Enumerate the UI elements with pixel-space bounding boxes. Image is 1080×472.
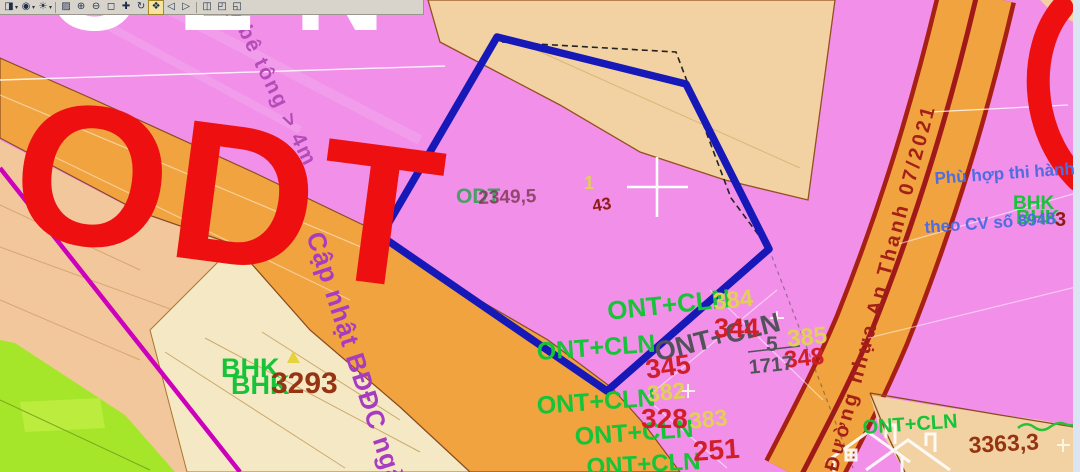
zoom-in-icon[interactable]: ⊕ <box>74 1 88 14</box>
map-label: 1 <box>584 174 594 192</box>
rotate-view-icon[interactable]: ↻ <box>134 1 148 14</box>
view-attributes-icon-dropdown[interactable]: ▾ <box>32 4 35 11</box>
brightness-icon-dropdown[interactable]: ▾ <box>49 4 52 11</box>
fit-view-icon[interactable]: ✚ <box>119 1 133 14</box>
map-label: 3363,3 <box>968 430 1039 457</box>
map-label: ONT+CLN <box>862 411 958 438</box>
zoom-out-icon[interactable]: ⊖ <box>89 1 103 14</box>
map-label: 384 <box>712 287 754 315</box>
map-viewport[interactable]: CLN ODT đường bê tông > 4m Cập nhật BĐĐC… <box>0 0 1080 472</box>
map-label: 1717 <box>748 353 794 378</box>
display-style-icon-dropdown[interactable]: ▾ <box>15 4 18 11</box>
map-label: theo CV số 8948 <box>924 210 1056 236</box>
map-label: 385 <box>786 324 828 352</box>
map-application-window: CLN ODT đường bê tông > 4m Cập nhật BĐĐC… <box>0 0 1080 472</box>
window-area-icon[interactable]: ◻ <box>104 1 118 14</box>
map-label: ONT+CLN <box>586 450 701 472</box>
map-label: 5 <box>766 334 778 355</box>
brightness-icon[interactable]: ☀ <box>36 1 50 14</box>
map-label: 3293 <box>271 369 338 399</box>
map-label: 382 <box>646 379 687 406</box>
map-label: 328 <box>641 405 688 433</box>
map-label: ONT+CLN <box>536 332 656 365</box>
map-label: 43 <box>591 195 613 215</box>
toolbar-separator <box>55 2 56 13</box>
update-view-icon[interactable]: ▨ <box>59 1 73 14</box>
map-labels-layer: ONT+CLNONT+CLNONT+CLNONT+CLNONT+CLNONT+C… <box>0 0 1080 472</box>
view-previous-icon[interactable]: ◁ <box>164 1 178 14</box>
map-label: 344 <box>714 315 759 342</box>
map-label: ONT+CLN <box>536 386 656 419</box>
view-attributes-icon[interactable]: ◉ <box>19 1 33 14</box>
pan-view-icon[interactable]: ❖ <box>149 1 163 14</box>
view-toolbar: ◨▾◉▾☀▾▨⊕⊖◻✚↻❖◁▷◫◰◱ <box>0 0 424 15</box>
map-label: 3 <box>1055 210 1066 230</box>
map-label: 383 <box>688 406 729 433</box>
navigate-view-icon[interactable]: ◱ <box>230 1 244 14</box>
map-label: Phù hợp thi hành <box>934 160 1075 187</box>
map-label: 251 <box>692 435 741 466</box>
view-next-icon[interactable]: ▷ <box>179 1 193 14</box>
walk-view-icon[interactable]: ◰ <box>215 1 229 14</box>
toolbar-separator <box>196 2 197 13</box>
map-label: 2349,5 <box>478 187 537 208</box>
display-style-icon[interactable]: ◨ <box>2 1 16 14</box>
copy-view-icon[interactable]: ◫ <box>200 1 214 14</box>
